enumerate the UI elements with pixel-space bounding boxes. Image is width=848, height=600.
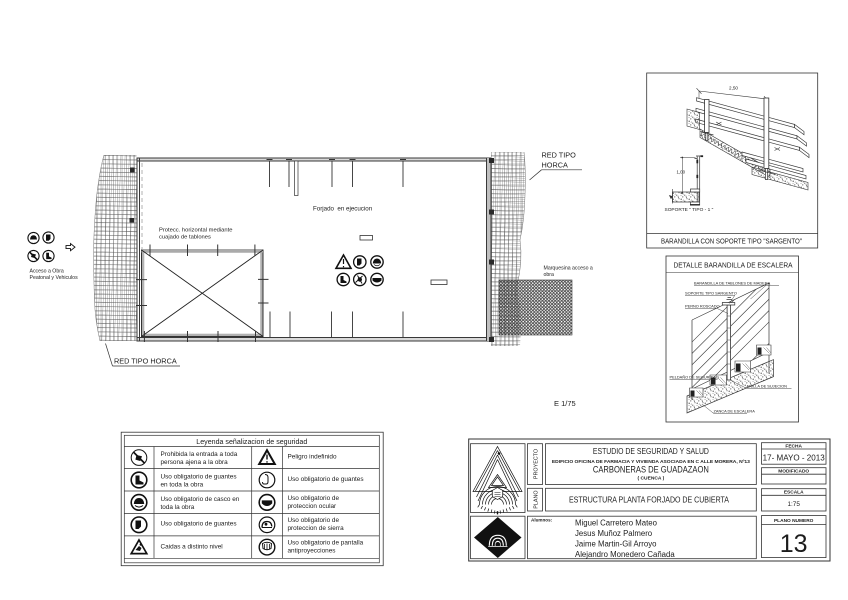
- svg-text:Protecc. horizontal mediante: Protecc. horizontal mediante: [159, 228, 232, 234]
- svg-text:ESTRUCTURA PLANTA FORJADO DE C: ESTRUCTURA PLANTA FORJADO DE CUBIERTA: [569, 495, 729, 505]
- svg-text:2,50: 2,50: [729, 86, 738, 91]
- svg-text:Alejandro Monedero Cañada: Alejandro Monedero Cañada: [575, 550, 675, 559]
- svg-text:Uso obligatorio de casco en: Uso obligatorio de casco en: [161, 496, 240, 503]
- svg-text:Peligro indefinido: Peligro indefinido: [288, 454, 337, 461]
- svg-text:Leyenda señalizacion de seguri: Leyenda señalizacion de seguridad: [196, 439, 307, 446]
- svg-text:1,00: 1,00: [677, 170, 686, 175]
- svg-text:proteccion de sierra: proteccion de sierra: [288, 525, 345, 532]
- svg-text:Uso obligatorio de: Uso obligatorio de: [288, 495, 340, 502]
- svg-text:HORCA: HORCA: [542, 161, 568, 170]
- svg-text:17- MAYO - 2013: 17- MAYO - 2013: [763, 454, 826, 463]
- svg-text:BARANDILLA DE TABLONES DE MADE: BARANDILLA DE TABLONES DE MADERA: [694, 281, 771, 286]
- svg-text:Marquesina acceso a: Marquesina acceso a: [544, 266, 593, 272]
- svg-text:toda la obra: toda la obra: [161, 504, 195, 511]
- svg-text:PLANO NUMERO: PLANO NUMERO: [774, 518, 814, 524]
- svg-text:Uso obligatorio de guantes: Uso obligatorio de guantes: [161, 521, 237, 528]
- svg-text:Uso obligatorio de: Uso obligatorio de: [288, 517, 340, 524]
- svg-text:obra: obra: [544, 272, 554, 278]
- svg-text:E 1/75: E 1/75: [554, 399, 576, 408]
- svg-text:proteccion ocular: proteccion ocular: [288, 503, 338, 510]
- svg-text:Peatonal y Vehiculos: Peatonal y Vehiculos: [30, 275, 79, 281]
- svg-text:PERNO ROSCADO: PERNO ROSCADO: [685, 304, 720, 309]
- svg-text:SOPORTE " TIPO - 1 ": SOPORTE " TIPO - 1 ": [665, 207, 714, 213]
- svg-text:ANILLA DE SUJECION: ANILLA DE SUJECION: [747, 384, 788, 389]
- svg-text:PROYECTO: PROYECTO: [534, 449, 540, 479]
- svg-text:cuajado de tablones: cuajado de tablones: [159, 235, 211, 241]
- svg-text:ZANCA DE ESCALERA: ZANCA DE ESCALERA: [714, 409, 756, 414]
- svg-text:antiproyecciones: antiproyecciones: [288, 548, 336, 555]
- svg-text:CARBONERAS DE GUADAZAON: CARBONERAS DE GUADAZAON: [593, 465, 709, 475]
- svg-text:Jesus Muñoz Palmero: Jesus Muñoz Palmero: [575, 529, 653, 538]
- svg-text:Acceso a Obra: Acceso a Obra: [30, 269, 64, 275]
- svg-text:Uso obligatorio de pantalla: Uso obligatorio de pantalla: [288, 540, 364, 547]
- svg-text:13: 13: [780, 530, 808, 558]
- svg-text:Alumnos:: Alumnos:: [531, 518, 553, 523]
- svg-text:PELDAÑO DE SEGURIDAD: PELDAÑO DE SEGURIDAD: [670, 375, 719, 380]
- svg-text:Jaime Martin-Gil Arroyo: Jaime Martin-Gil Arroyo: [575, 540, 657, 549]
- svg-text:Uso obligatorio de guantes: Uso obligatorio de guantes: [161, 474, 237, 481]
- svg-text:en toda la obra: en toda la obra: [161, 482, 204, 489]
- svg-text:Miguel Carretero Mateo: Miguel Carretero Mateo: [575, 519, 658, 528]
- svg-text:BARANDILLA CON SOPORTE TIPO "S: BARANDILLA CON SOPORTE TIPO "SARGENTO": [661, 237, 802, 246]
- svg-text:Forjado en ejecucion: Forjado en ejecucion: [313, 206, 373, 213]
- svg-text:DETALLE BARANDILLA DE ESCALERA: DETALLE BARANDILLA DE ESCALERA: [674, 261, 793, 270]
- svg-text:RED TIPO HORCA: RED TIPO HORCA: [114, 357, 177, 366]
- svg-text:ESCALA: ESCALA: [784, 490, 804, 496]
- svg-text:persona ajena a la obra: persona ajena a la obra: [161, 459, 229, 466]
- svg-text:Prohibida la entrada a toda: Prohibida la entrada a toda: [161, 451, 238, 458]
- svg-text:FECHA: FECHA: [785, 444, 802, 450]
- svg-text:MODIFICADO: MODIFICADO: [778, 469, 809, 475]
- svg-text:1:75: 1:75: [787, 501, 800, 508]
- svg-text:( CUENCA ): ( CUENCA ): [638, 476, 665, 482]
- svg-text:Uso obligatorio de guantes: Uso obligatorio de guantes: [288, 476, 364, 483]
- svg-text:SOPORTE TIPO SARGENTO: SOPORTE TIPO SARGENTO: [685, 291, 737, 296]
- svg-text:ESTUDIO DE SEGURIDAD Y SALUD: ESTUDIO DE SEGURIDAD Y SALUD: [593, 446, 709, 456]
- svg-text:RED TIPO: RED TIPO: [542, 151, 577, 160]
- svg-text:PLANO: PLANO: [534, 490, 540, 508]
- svg-text:Caidas a distinto nivel: Caidas a distinto nivel: [161, 544, 223, 551]
